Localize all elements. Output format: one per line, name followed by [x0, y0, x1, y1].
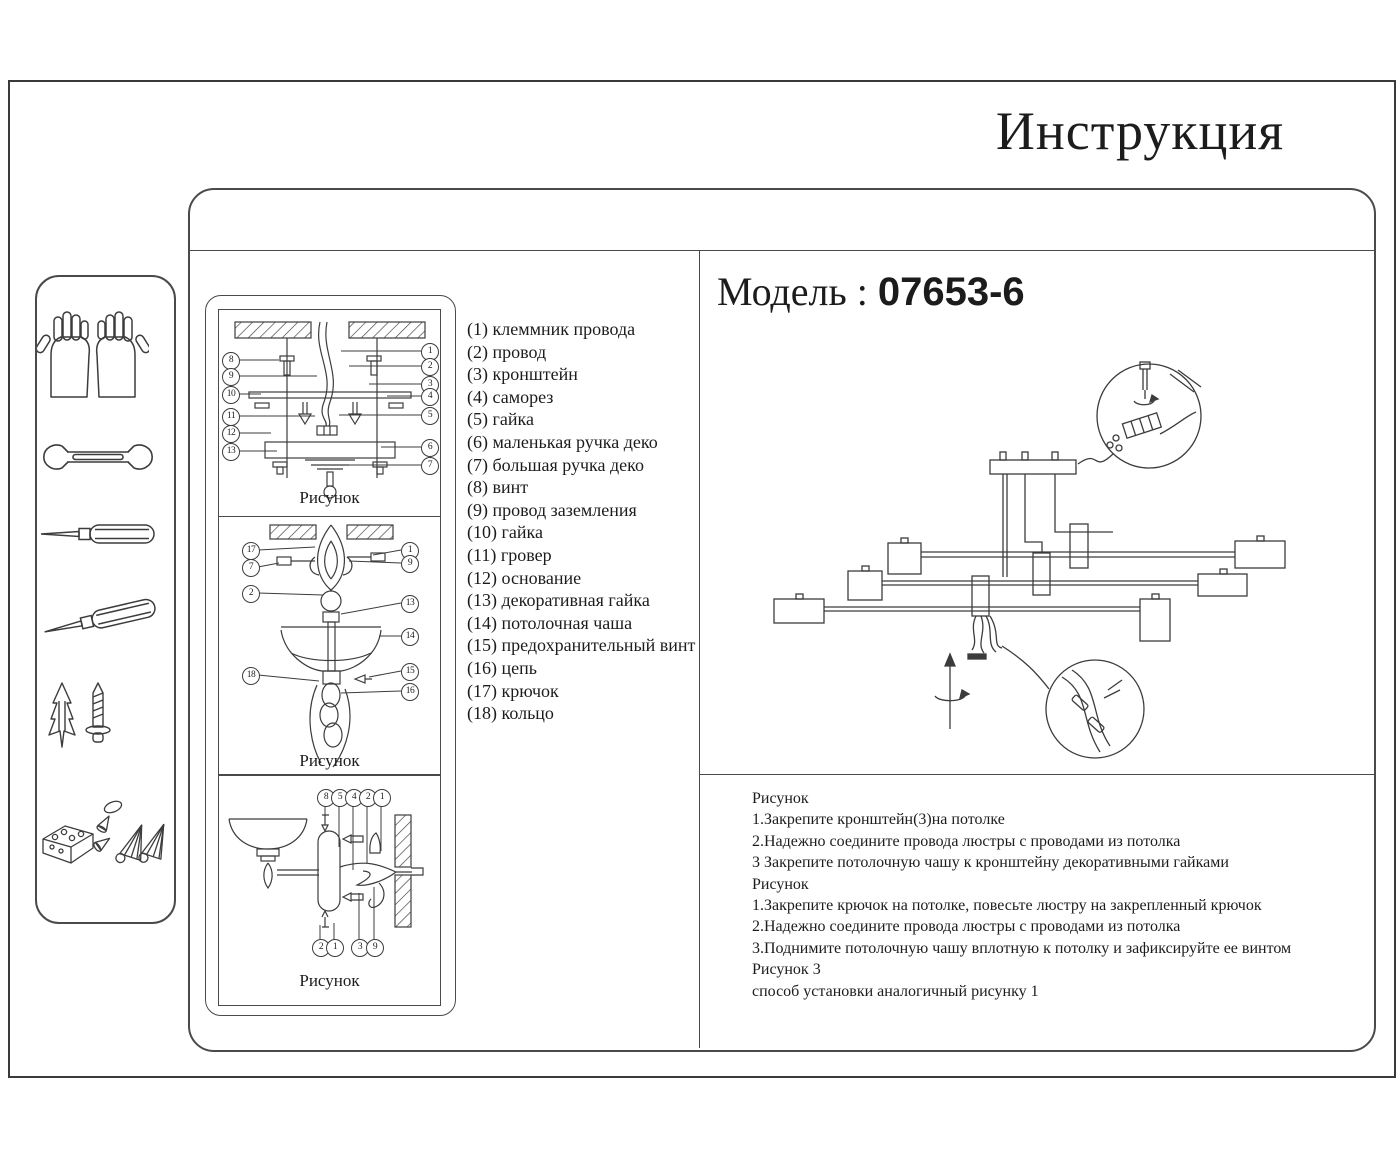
callout-12: 12 [222, 425, 240, 443]
part-name: декоративная гайка [502, 590, 650, 610]
callout-10: 10 [222, 386, 240, 404]
screwdriver-angled-icon [37, 589, 174, 639]
instruction-line: 2.Надежно соедините провода люстры с про… [752, 916, 1352, 937]
wrench-icon [37, 439, 174, 475]
callout-7: 7 [421, 457, 439, 475]
tools-sidebar [35, 275, 176, 924]
part-number: (14) [467, 613, 497, 633]
part-item: (2) провод [467, 341, 709, 364]
instruction-line: 1.Закрепите крючок на потолке, повесьте … [752, 895, 1352, 916]
figure-1: 89101112131234567 Рисунок [218, 309, 441, 517]
figure3-caption: Рисунок [219, 971, 440, 991]
part-name: цепь [502, 658, 537, 678]
figure1-callouts: 89101112131234567 [219, 310, 440, 516]
part-item: (16) цепь [467, 657, 709, 680]
anchor-screw-icon [37, 677, 174, 753]
parts-list: (1) клеммник провода(2) провод(3) кроншт… [467, 318, 709, 725]
callout-13: 13 [401, 595, 419, 613]
part-name: кронштейн [493, 364, 578, 384]
instruction-line: Рисунок [752, 788, 1352, 809]
part-name: большая ручка деко [493, 455, 645, 475]
part-name: провод заземления [493, 500, 637, 520]
part-number: (5) [467, 409, 488, 429]
part-name: предохранительный винт [502, 635, 696, 655]
part-number: (18) [467, 703, 497, 723]
figure-3: 854212139 Рисунок [218, 774, 441, 1006]
callout-9: 9 [366, 939, 384, 957]
part-name: провод [493, 342, 547, 362]
callout-2: 2 [421, 358, 439, 376]
figure2-callouts: 1772181913141516 [219, 517, 440, 775]
gloves-icon [37, 309, 174, 403]
part-name: потолочная чаша [502, 613, 633, 633]
part-item: (18) кольцо [467, 702, 709, 725]
part-item: (12) основание [467, 567, 709, 590]
part-name: гайка [502, 522, 543, 542]
part-number: (17) [467, 681, 497, 701]
wire-detail-inset [1046, 660, 1144, 758]
terminal-detail-inset [1097, 362, 1201, 468]
callout-4: 4 [421, 388, 439, 406]
model-value: 07653-6 [878, 270, 1025, 314]
part-item: (15) предохранительный винт [467, 634, 709, 657]
installation-instructions: Рисунок1.Закрепите кронштейн(3)на потолк… [752, 788, 1352, 1002]
callout-5: 5 [421, 407, 439, 425]
instruction-line: 3 Закрепите потолочную чашу к кронштейну… [752, 852, 1352, 873]
callout-7: 7 [242, 559, 260, 577]
connector-bar [968, 654, 986, 659]
rod-2 [1025, 474, 1042, 553]
model-label: Модель : [717, 269, 868, 314]
callout-1: 1 [326, 939, 344, 957]
rod-1 [1003, 474, 1007, 577]
part-item: (9) провод заземления [467, 499, 709, 522]
part-name: кольцо [502, 703, 554, 723]
figure-2: 1772181913141516 Рисунок [218, 516, 441, 776]
callout-9: 9 [401, 555, 419, 573]
callout-14: 14 [401, 628, 419, 646]
wire-inset-leader [1002, 646, 1049, 689]
part-number: (13) [467, 590, 497, 610]
drawing-text-divider [699, 774, 1374, 775]
callout-18: 18 [242, 667, 260, 685]
part-item: (4) саморез [467, 386, 709, 409]
callout-17: 17 [242, 542, 260, 560]
instruction-sheet: Инструкция [0, 0, 1400, 1166]
part-number: (7) [467, 455, 488, 475]
inset-leader-line [1078, 454, 1113, 464]
part-item: (1) клеммник провода [467, 318, 709, 341]
rod-3 [1055, 474, 1113, 532]
small-parts-icon [37, 795, 174, 879]
part-item: (3) кронштейн [467, 363, 709, 386]
callout-16: 16 [401, 683, 419, 701]
arm-middle [848, 553, 1247, 600]
part-item: (10) гайка [467, 521, 709, 544]
part-number: (2) [467, 342, 488, 362]
part-item: (13) декоративная гайка [467, 589, 709, 612]
part-item: (5) гайка [467, 408, 709, 431]
part-item: (7) большая ручка деко [467, 454, 709, 477]
part-name: саморез [493, 387, 554, 407]
part-name: клеммник провода [493, 319, 636, 339]
instruction-line: способ установки аналогичный рисунку 1 [752, 981, 1352, 1002]
part-number: (9) [467, 500, 488, 520]
part-number: (6) [467, 432, 488, 452]
instruction-line: Рисунок 3 [752, 959, 1352, 980]
part-item: (14) потолочная чаша [467, 612, 709, 635]
callout-15: 15 [401, 663, 419, 681]
part-item: (8) винт [467, 476, 709, 499]
part-number: (12) [467, 568, 497, 588]
part-item: (6) маленькая ручка деко [467, 431, 709, 454]
callout-9: 9 [222, 368, 240, 386]
callout-2: 2 [242, 585, 260, 603]
callout-13: 13 [222, 443, 240, 461]
ceiling-plate [990, 452, 1076, 474]
instruction-line: 2.Надежно соедините провода люстры с про… [752, 831, 1352, 852]
figures-panel: 89101112131234567 Рисунок [205, 295, 456, 1016]
part-name: гайка [493, 409, 534, 429]
part-name: гровер [501, 545, 552, 565]
callout-11: 11 [222, 408, 240, 426]
part-number: (4) [467, 387, 488, 407]
part-number: (15) [467, 635, 497, 655]
part-number: (16) [467, 658, 497, 678]
part-name: основание [502, 568, 582, 588]
part-number: (1) [467, 319, 488, 339]
part-number: (10) [467, 522, 497, 542]
page-title: Инструкция [950, 100, 1330, 162]
part-name: маленькая ручка деко [493, 432, 658, 452]
part-number: (8) [467, 477, 488, 497]
center-column [972, 576, 989, 616]
callout-1: 1 [373, 789, 391, 807]
part-item: (11) гровер [467, 544, 709, 567]
header-band-line [190, 250, 1374, 251]
instruction-line: 3.Поднимите потолочную чашу вплотную к п… [752, 938, 1352, 959]
screwdriver-icon [37, 520, 174, 548]
callout-6: 6 [421, 439, 439, 457]
part-number: (11) [467, 545, 496, 565]
chandelier-drawing [699, 347, 1374, 774]
part-item: (17) крючок [467, 680, 709, 703]
figure1-caption: Рисунок [219, 488, 440, 508]
rotate-up-arrow [935, 654, 969, 729]
hanging-wires [972, 616, 1002, 653]
part-name: крючок [502, 681, 559, 701]
model-row: Модель :07653-6 [717, 268, 1025, 315]
instruction-line: Рисунок [752, 874, 1352, 895]
main-panel: 89101112131234567 Рисунок [188, 188, 1376, 1052]
part-name: винт [493, 477, 529, 497]
figure2-caption: Рисунок [219, 751, 440, 771]
part-number: (3) [467, 364, 488, 384]
instruction-line: 1.Закрепите кронштейн(3)на потолке [752, 809, 1352, 830]
